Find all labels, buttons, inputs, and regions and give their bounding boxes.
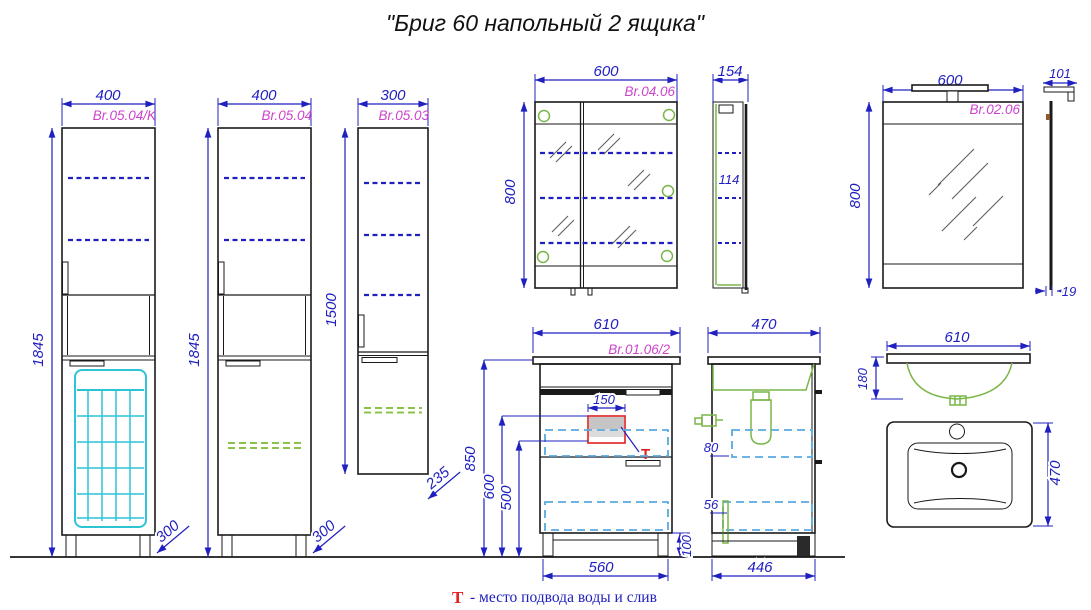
mount-bracket bbox=[1046, 114, 1050, 120]
lower-door-handle bbox=[226, 361, 260, 366]
side-green-edge bbox=[716, 104, 741, 285]
sink-slab bbox=[887, 354, 1030, 363]
dim-height: 1845 bbox=[30, 333, 47, 367]
technical-drawing-page: "Бриг 60 напольный 2 ящика" 400 Br.05.04… bbox=[0, 0, 1091, 610]
leg bbox=[222, 535, 232, 557]
lower-door-handle bbox=[362, 358, 397, 363]
dim-base-width: 560 bbox=[588, 559, 614, 576]
dim-width: 300 bbox=[380, 87, 406, 104]
faucet-hole bbox=[950, 424, 965, 439]
view-mirror-cabinet-front: 600 Br.04.06 800 bbox=[502, 63, 677, 295]
drain-pipe-bracket bbox=[723, 501, 728, 543]
svg-text:300: 300 bbox=[309, 517, 340, 547]
dim-width: 610 bbox=[593, 316, 619, 333]
model-label: Br.04.06 bbox=[624, 84, 675, 99]
model-label: Br.05.04/K bbox=[93, 108, 157, 123]
supply-symbol: Т bbox=[452, 588, 464, 607]
door-handle bbox=[219, 262, 225, 294]
view-sink-top: 470 bbox=[887, 422, 1064, 527]
dim-shelf-gap: 114 bbox=[719, 172, 740, 187]
dim-top-gap: 80 bbox=[704, 440, 719, 455]
shelf-dashes bbox=[68, 178, 149, 240]
view-sink-front: 610 180 bbox=[855, 329, 1030, 405]
shelf-dashes bbox=[540, 153, 673, 243]
mirror-body bbox=[883, 102, 1023, 288]
view-tall-cabinet-k: 400 Br.05.04/K 1845 300 bbox=[30, 87, 189, 557]
cabinet-body bbox=[535, 102, 677, 288]
drain-flange bbox=[753, 392, 769, 400]
drawer-box-dashed bbox=[723, 502, 812, 530]
dim-supply-width: 150 bbox=[593, 392, 615, 407]
dim-depth: 470 bbox=[1047, 460, 1064, 486]
lower-door-handle bbox=[70, 361, 104, 366]
open-niche bbox=[62, 296, 155, 360]
cabinet-body bbox=[218, 128, 311, 535]
drawer-handle bbox=[626, 390, 660, 396]
dim-width: 610 bbox=[944, 329, 970, 346]
mirror-hatching bbox=[929, 149, 1003, 240]
dim-thickness: 19 bbox=[1062, 284, 1076, 299]
dim-depth-diagonal: 235 bbox=[416, 458, 460, 499]
leg bbox=[296, 535, 306, 557]
dim-height: 1845 bbox=[186, 333, 203, 367]
water-valve bbox=[702, 415, 716, 426]
hinge-markers bbox=[538, 110, 675, 263]
siphon bbox=[751, 400, 771, 444]
dim-width: 400 bbox=[251, 87, 277, 104]
countertop bbox=[533, 357, 680, 364]
dim-bottom-gap: 56 bbox=[704, 497, 719, 512]
model-label: Br.05.04 bbox=[261, 108, 312, 123]
dim-base-depth: 446 bbox=[747, 559, 773, 576]
leg-side bbox=[797, 536, 810, 556]
shelf-green-dashes bbox=[364, 408, 422, 413]
shelf-dashes bbox=[364, 183, 422, 295]
model-label: Br.01.06/2 bbox=[608, 342, 670, 357]
dim-lamp-depth: 101 bbox=[1049, 66, 1071, 81]
countertop-side bbox=[708, 357, 820, 364]
drawer-handle-side bbox=[815, 460, 822, 464]
drawer-handle-side bbox=[815, 390, 822, 394]
dim-drain-height: 500 bbox=[498, 485, 515, 511]
lamp-bar-side bbox=[1044, 87, 1074, 92]
sink-outline bbox=[887, 422, 1032, 527]
drawer-box-dashed bbox=[545, 502, 668, 530]
supply-mark: Т bbox=[641, 446, 650, 463]
page-title: "Бриг 60 напольный 2 ящика" bbox=[386, 10, 706, 36]
leg bbox=[543, 533, 553, 556]
dim-depth-diagonal: 300 bbox=[145, 512, 189, 553]
view-tall-cabinet: 400 Br.05.04 1845 300 bbox=[186, 87, 345, 557]
sink-basin-profile bbox=[713, 364, 814, 390]
mirror-hatching bbox=[550, 134, 650, 248]
door-handle bbox=[588, 288, 592, 295]
shelf-dashes bbox=[224, 178, 305, 240]
dim-height: 800 bbox=[847, 183, 864, 209]
svg-text:235: 235 bbox=[422, 463, 453, 493]
leg bbox=[658, 533, 668, 556]
dim-depth-diagonal: 300 bbox=[301, 512, 345, 553]
side-body bbox=[713, 102, 743, 288]
leg bbox=[66, 535, 76, 557]
leg bbox=[140, 535, 150, 557]
door-handle bbox=[359, 315, 365, 347]
lamp-stem bbox=[947, 91, 958, 102]
model-label: Br.02.06 bbox=[969, 102, 1020, 117]
open-niche bbox=[218, 296, 311, 360]
lamp-bar bbox=[912, 85, 988, 91]
door-handle bbox=[571, 288, 575, 295]
dim-leg-height: 100 bbox=[679, 534, 694, 556]
dim-depth: 154 bbox=[717, 63, 742, 80]
drawer-box-dashed bbox=[732, 430, 812, 457]
dim-depth: 470 bbox=[751, 316, 777, 333]
furniture-drawing-canvas: "Бриг 60 напольный 2 ящика" 400 Br.05.04… bbox=[0, 0, 1091, 610]
dim-width: 600 bbox=[593, 63, 619, 80]
svg-text:300: 300 bbox=[153, 517, 184, 547]
view-mirror-cabinet-side: 154 114 bbox=[713, 63, 748, 293]
shelf-green-dashes bbox=[228, 443, 303, 448]
footnote-text: - место подвода воды и слив bbox=[470, 589, 657, 606]
view-mirror-front: 600 Br.02.06 800 bbox=[847, 72, 1023, 288]
drain-hole bbox=[952, 463, 966, 477]
view-vanity-side: 470 80 56 446 bbox=[695, 316, 822, 581]
dim-supply-height: 600 bbox=[481, 474, 498, 500]
model-label: Br.05.03 bbox=[378, 108, 429, 123]
dim-width: 400 bbox=[95, 87, 121, 104]
shelf-dashes bbox=[718, 153, 741, 243]
laundry-basket bbox=[75, 370, 146, 527]
view-wall-cabinet: 300 Br.05.03 1500 235 bbox=[323, 87, 460, 499]
footnote: Т - место подвода воды и слив bbox=[452, 588, 657, 607]
view-vanity-front: 610 Br.01.06/2 150 Т 850 600 500 560 1 bbox=[462, 316, 694, 581]
bowl-profile bbox=[907, 363, 1012, 399]
dim-height: 850 bbox=[462, 446, 479, 472]
drain-stub bbox=[950, 396, 966, 405]
top-notch bbox=[719, 105, 733, 113]
dim-height: 1500 bbox=[323, 293, 340, 327]
view-mirror-side: 101 19 bbox=[1035, 66, 1077, 299]
dim-bowl-depth: 180 bbox=[855, 367, 870, 389]
door-handle bbox=[63, 262, 69, 294]
dim-height: 800 bbox=[502, 179, 519, 205]
cabinet-body bbox=[358, 128, 428, 474]
